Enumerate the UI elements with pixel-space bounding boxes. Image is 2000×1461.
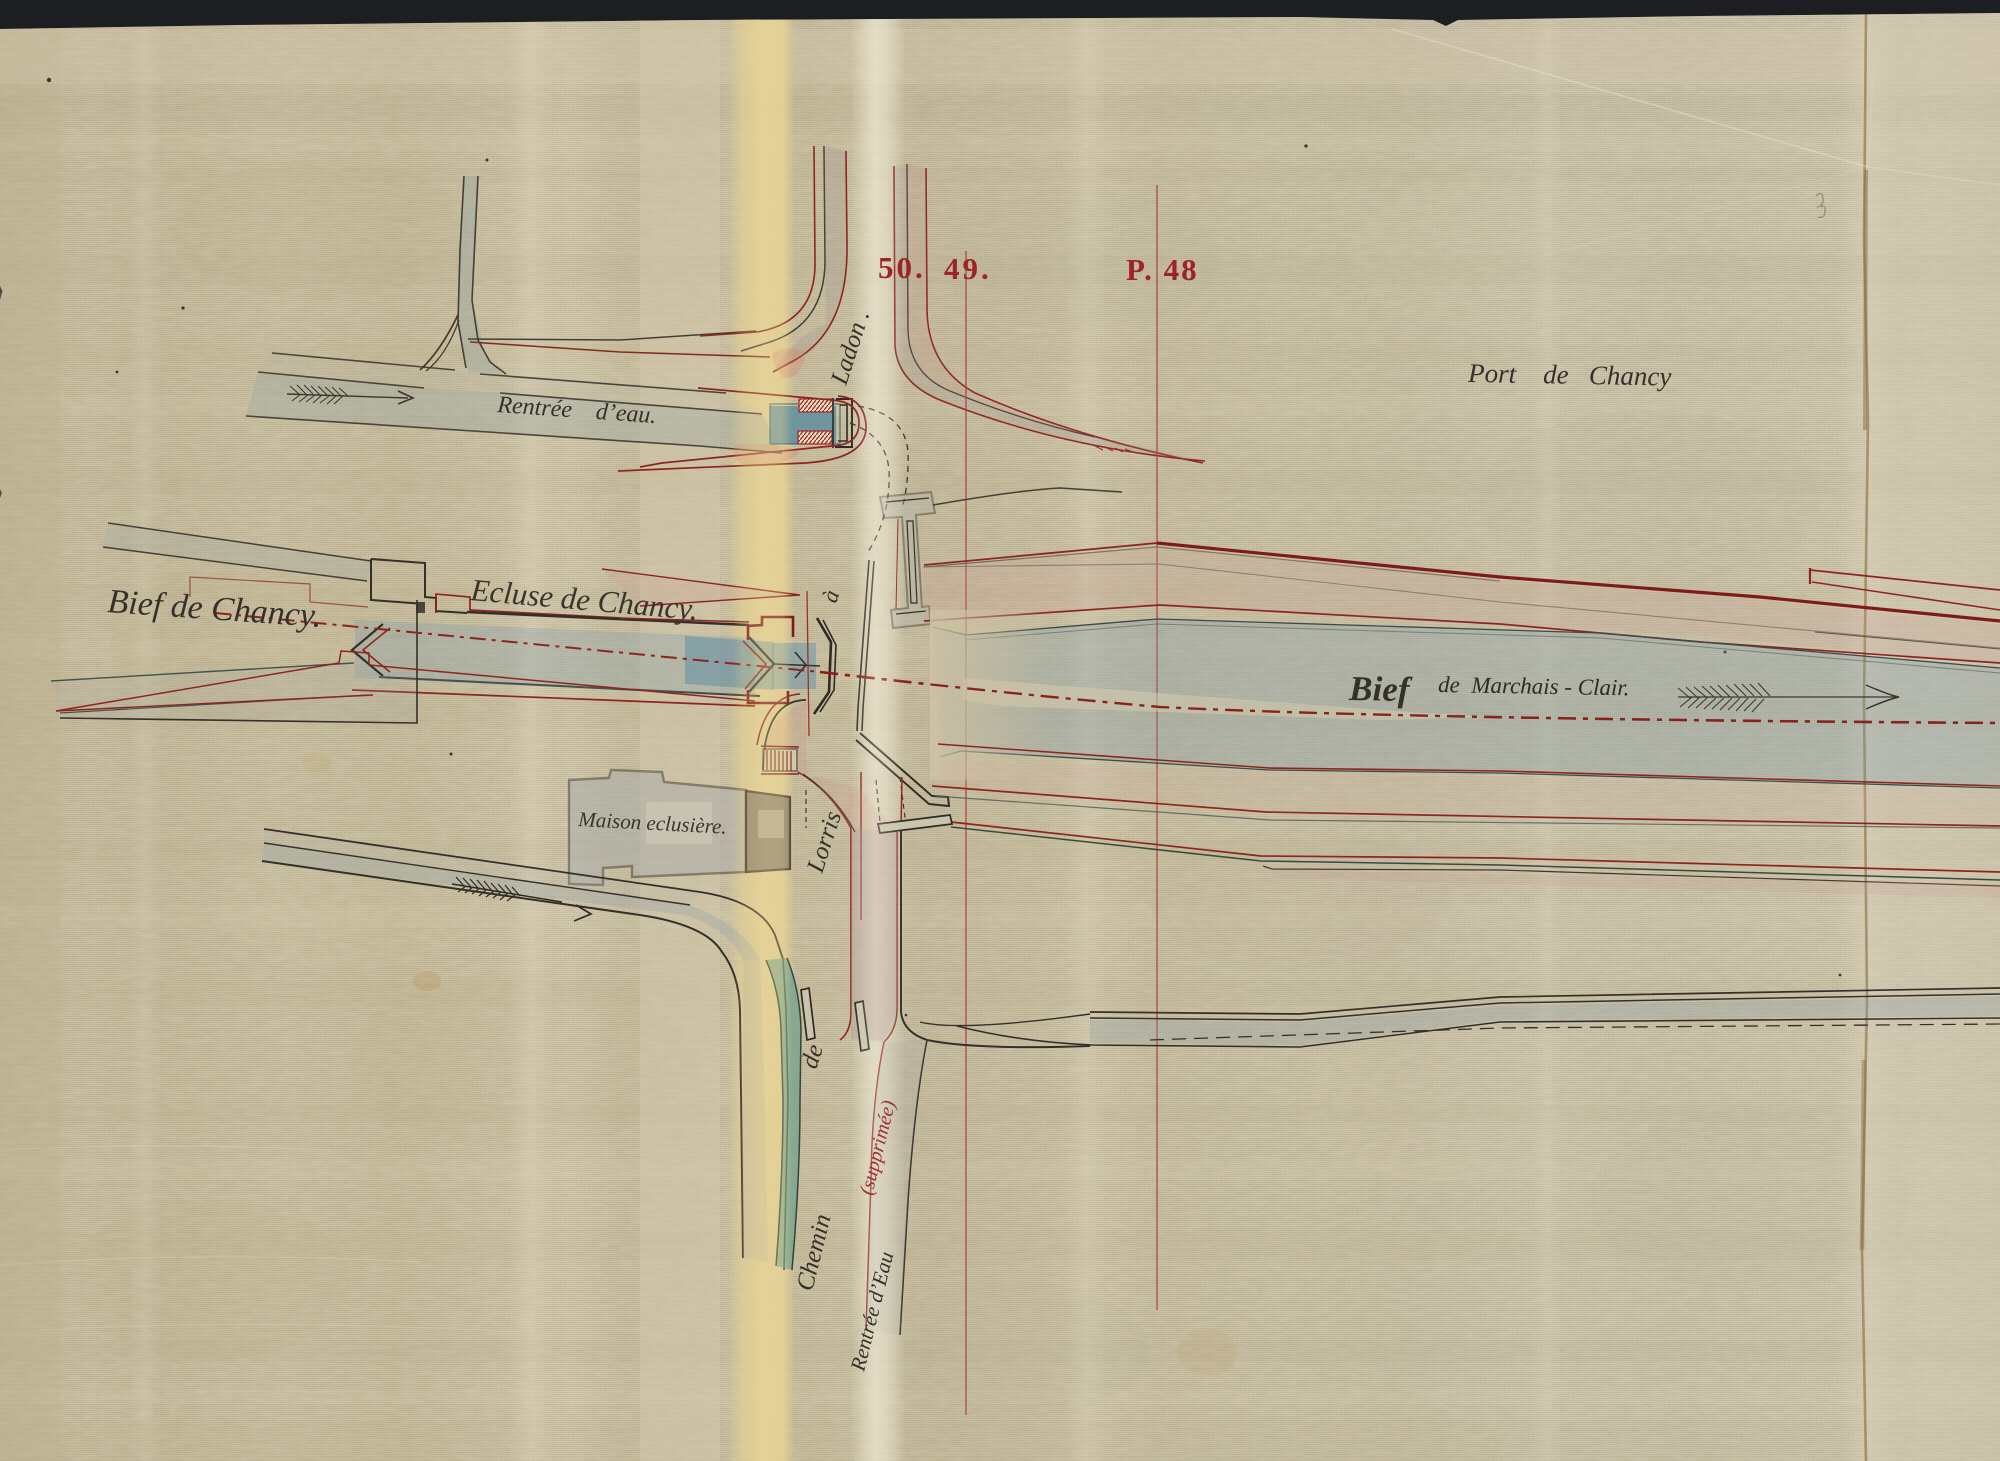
svg-text:Port de Chancy: Port de Chancy bbox=[1467, 358, 1672, 392]
svg-text:de Marchais - Clair.: de Marchais - Clair. bbox=[1438, 672, 1630, 700]
svg-text:50.: 50. bbox=[878, 250, 926, 285]
svg-text:49.: 49. bbox=[944, 251, 992, 286]
svg-text:Bief: Bief bbox=[1348, 669, 1413, 709]
svg-text:P. 48: P. 48 bbox=[1126, 252, 1199, 287]
